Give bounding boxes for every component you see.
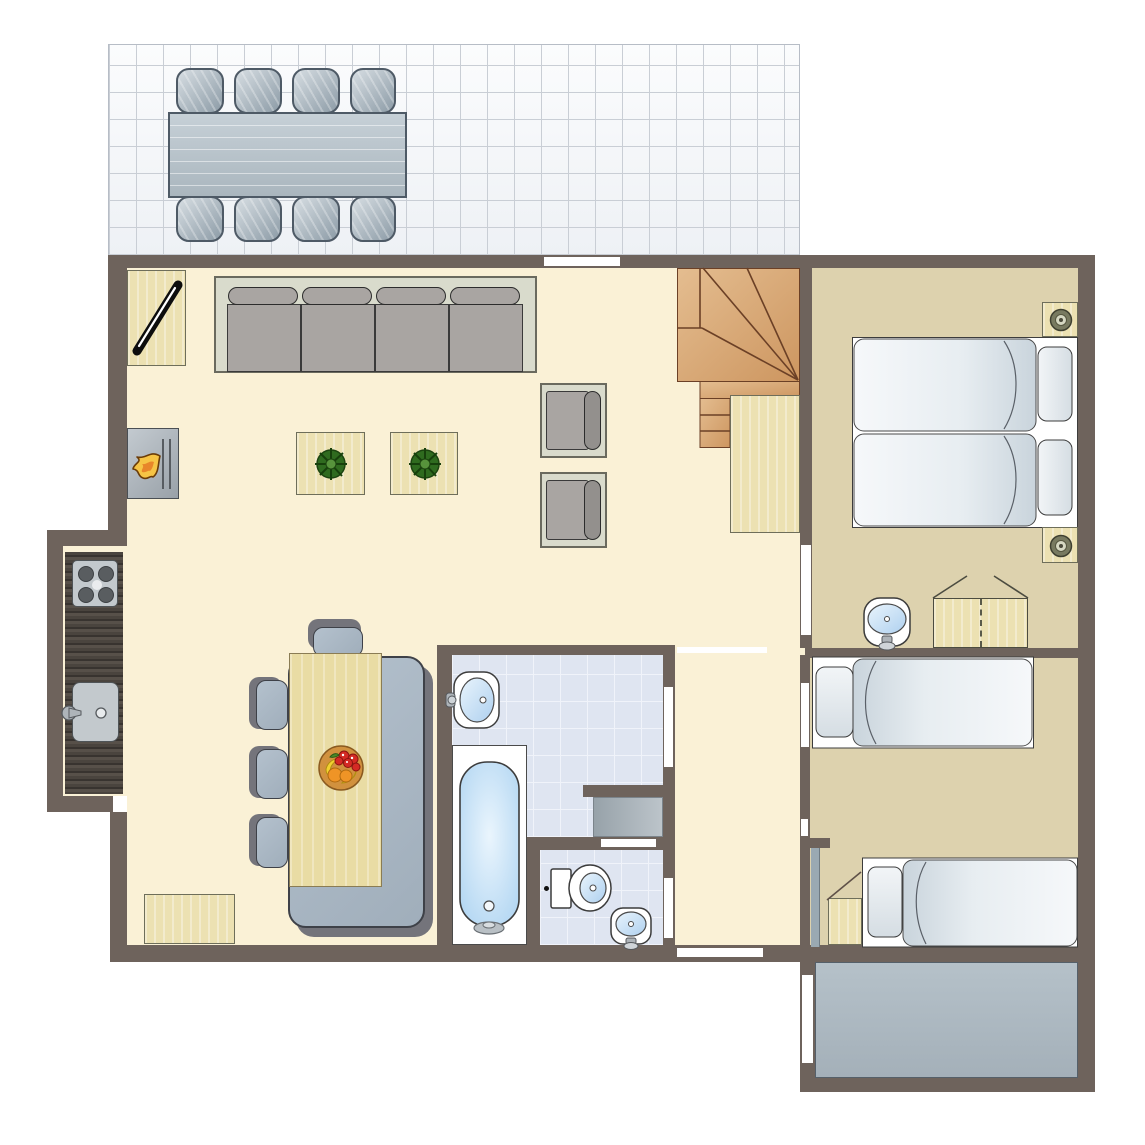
wall-terrace2-bottom (800, 1078, 1095, 1092)
fruit-bowl-icon (318, 745, 364, 791)
wall-kitchen-left (47, 530, 63, 812)
outdoor-chair (292, 196, 340, 242)
outdoor-chair (350, 68, 396, 114)
dining-chair (256, 817, 288, 868)
tv-cabinet (127, 270, 186, 366)
armchair-cushion (546, 391, 589, 450)
door-opening-storage-niche (601, 839, 656, 847)
sofa (214, 276, 537, 373)
sofa-back-cushion (450, 287, 520, 305)
twin-beds (852, 337, 1078, 528)
dining-chair (256, 680, 288, 730)
door-opening-hallway-top (677, 647, 767, 653)
plant-icon (405, 444, 445, 484)
door-opening-terrace-living (544, 257, 620, 266)
outdoor-chair (292, 68, 340, 114)
wardrobe (933, 598, 1028, 648)
wall-kitchen-bottom (47, 796, 113, 812)
door-opening-entrance (677, 948, 763, 957)
nightstand (828, 898, 862, 945)
outdoor-chair (176, 68, 224, 114)
coffee-table (296, 432, 365, 495)
door-swing-line (825, 868, 863, 902)
sofa-seat-cushion (227, 304, 301, 372)
wall-niche-top (583, 785, 663, 797)
door-opening-bathroom (664, 687, 673, 767)
door-leaf (811, 848, 820, 947)
wall-bedroom2-stub (808, 838, 830, 848)
armchair (540, 472, 607, 548)
kitchen-sink (72, 682, 119, 742)
washbasin-small (609, 906, 653, 950)
stove-burners (73, 561, 119, 608)
sofa-seat-cushion (449, 304, 523, 372)
sofa-seat-cushion (301, 304, 375, 372)
fireplace-vent-line (162, 439, 164, 489)
armchair-armrest (584, 391, 601, 450)
wall-tub-toilet-divider (527, 837, 540, 947)
dining-chair (256, 749, 288, 799)
washbasin (446, 670, 504, 730)
lamp-icon (1049, 534, 1073, 558)
bathtub (456, 748, 523, 944)
door-opening-terrace2 (802, 975, 813, 1063)
wall-bathroom-top (437, 645, 675, 655)
sofa-seat-cushion (375, 304, 449, 372)
door-opening-bedroom2 (801, 683, 809, 747)
single-bed (862, 856, 1078, 948)
understairs-cabinet (730, 395, 800, 533)
washbasin-bedroom (858, 598, 916, 652)
sofa-back-cushion (302, 287, 372, 305)
wall-right (1078, 255, 1095, 1092)
toilet (550, 862, 612, 914)
armchair-armrest (584, 480, 601, 540)
wardrobe-divider (980, 599, 982, 647)
outdoor-chair (234, 196, 282, 242)
fireplace (127, 428, 179, 499)
nightstand (1042, 302, 1078, 337)
stove (72, 560, 118, 607)
washing-machine (593, 797, 663, 837)
sink-faucet-icon (61, 683, 121, 743)
tv-icon (128, 271, 187, 367)
door-opening-bedroom2-south (801, 819, 808, 836)
door-opening-toilet (664, 878, 673, 938)
armchair-cushion (546, 480, 589, 540)
single-bed (812, 655, 1034, 750)
sofa-back-cushion (376, 287, 446, 305)
flame-icon (132, 450, 162, 484)
toilet-flush-dot (544, 886, 549, 891)
rug (144, 894, 235, 944)
outdoor-dining-table (168, 112, 407, 198)
terrace-bottom-floor (815, 962, 1078, 1078)
lamp-icon (1049, 308, 1073, 332)
armchair (540, 383, 607, 458)
wardrobe-door-lines (933, 570, 1028, 598)
outdoor-chair (176, 196, 224, 242)
door-opening-bedroom1 (801, 545, 811, 635)
sofa-back-cushion (228, 287, 298, 305)
outdoor-chair (234, 68, 282, 114)
wall-left-lower (110, 812, 127, 952)
wall-left-upper (108, 255, 127, 546)
coffee-table (390, 432, 458, 495)
fireplace-vent-line (169, 439, 171, 489)
outdoor-chair (350, 196, 396, 242)
plant-icon (311, 444, 351, 484)
floor-plan (0, 0, 1145, 1145)
nightstand (1042, 527, 1078, 563)
